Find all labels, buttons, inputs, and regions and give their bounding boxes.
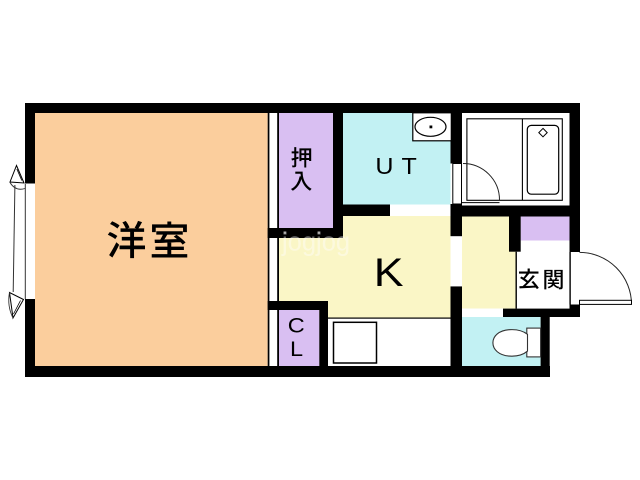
svg-text:T: T: [402, 154, 418, 180]
svg-text:L: L: [290, 337, 303, 361]
svg-text:U: U: [375, 154, 393, 180]
svg-text:jogjog: jogjog: [281, 228, 350, 256]
svg-text:K: K: [374, 250, 404, 294]
svg-text:C: C: [288, 314, 305, 338]
